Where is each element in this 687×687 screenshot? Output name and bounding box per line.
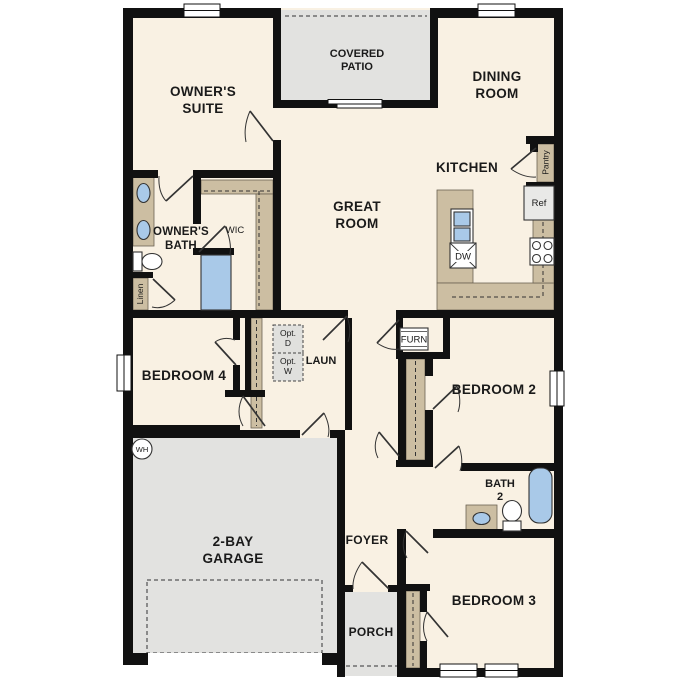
label-owners-bath-2: BATH — [165, 240, 197, 252]
floor-plan-drawing: OWNER'S SUITE COVERED PATIO DINING ROOM … — [0, 0, 687, 687]
label-owners-bath: OWNER'S — [153, 226, 209, 238]
label-opt-d: Opt. — [280, 328, 296, 338]
label-opt-w-2: W — [284, 366, 292, 376]
label-garage-2: GARAGE — [202, 551, 263, 566]
bath2-toilet-bowl — [503, 501, 522, 522]
window-bedroom2 — [550, 371, 564, 406]
bath2-tub — [529, 468, 552, 523]
label-wh: WH — [136, 445, 149, 454]
label-owners-suite-2: SUITE — [182, 101, 223, 116]
label-dining-room: DINING — [472, 69, 521, 84]
bath2-sink — [473, 513, 490, 525]
label-wic: WIC — [226, 225, 245, 236]
label-opt-d-2: D — [285, 338, 291, 348]
kitchen-sink-bowl-1 — [454, 212, 470, 226]
wic-shelf-top — [201, 180, 273, 194]
label-laun: LAUN — [306, 355, 337, 367]
label-bedroom4: BEDROOM 4 — [142, 368, 227, 383]
window-owners-suite — [184, 4, 220, 17]
owners-toilet-bowl — [142, 254, 162, 270]
label-dw: DW — [455, 252, 471, 263]
owners-bath-sink-1 — [137, 184, 150, 203]
label-porch: PORCH — [349, 625, 394, 639]
label-kitchen: KITCHEN — [436, 160, 498, 175]
owners-toilet-tank — [133, 252, 142, 271]
owners-shower — [201, 255, 231, 310]
garage-door-opening — [148, 653, 322, 665]
label-foyer: FOYER — [346, 533, 389, 547]
label-great-room-2: ROOM — [335, 216, 378, 231]
label-opt-w: Opt. — [280, 356, 296, 366]
label-bath2-2: 2 — [497, 491, 503, 503]
label-great-room: GREAT — [333, 199, 381, 214]
window-bedroom3-right — [485, 664, 518, 677]
label-dining-room-2: ROOM — [475, 86, 518, 101]
label-covered-patio-2: PATIO — [341, 61, 373, 73]
label-bedroom2: BEDROOM 2 — [452, 382, 536, 397]
label-owners-suite: OWNER'S — [170, 84, 236, 99]
window-bedroom4 — [117, 355, 131, 391]
label-ref: Ref — [532, 198, 547, 209]
label-pantry: Pantry — [541, 149, 551, 174]
window-bedroom3-left — [440, 664, 477, 677]
bedroom2-closet — [406, 359, 425, 460]
label-covered-patio: COVERED — [330, 48, 384, 60]
bath2-toilet-tank — [503, 521, 521, 531]
label-bath2: BATH — [485, 478, 515, 490]
label-bedroom3: BEDROOM 3 — [452, 593, 537, 608]
stove — [530, 238, 554, 265]
label-garage: 2-BAY — [213, 534, 254, 549]
owners-bath-sink-2 — [137, 221, 150, 240]
kitchen-sink-bowl-2 — [454, 228, 470, 241]
label-linen: Linen — [135, 283, 145, 304]
floor-plan: OWNER'S SUITE COVERED PATIO DINING ROOM … — [0, 0, 687, 687]
label-furn: FURN — [401, 335, 428, 346]
window-dining — [478, 4, 515, 17]
